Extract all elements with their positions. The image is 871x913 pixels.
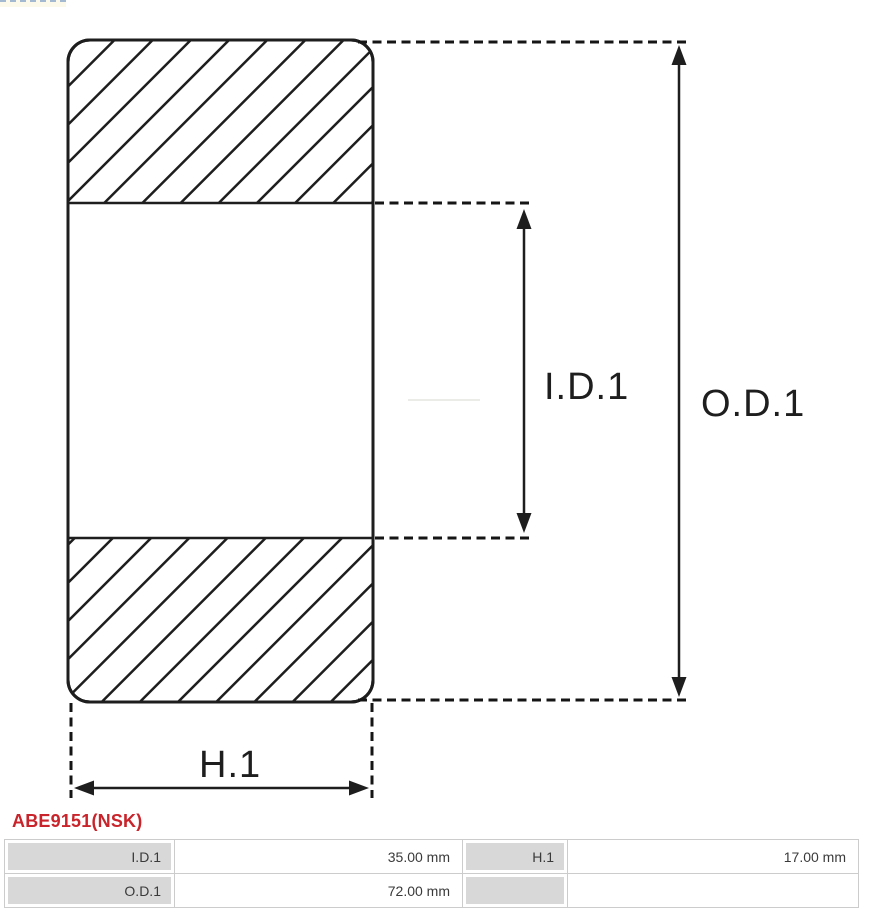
id1-dimension-arrow [517, 209, 532, 533]
table-row: O.D.1 72.00 mm [5, 874, 859, 908]
spec-label-h1: H.1 [466, 843, 564, 870]
spec-value-empty [568, 874, 859, 908]
spec-label-empty [466, 877, 564, 904]
spec-value-h1: 17.00 mm [568, 840, 859, 874]
bottom-ring-hatch [68, 539, 373, 702]
part-number-title: ABE9151(NSK) [12, 811, 142, 832]
id1-dimension-label: I.D.1 [544, 366, 629, 408]
top-ring-hatch [68, 40, 373, 203]
spec-label-cell-id1: I.D.1 [5, 840, 175, 874]
specs-table: I.D.1 35.00 mm H.1 17.00 mm O.D.1 72.00 … [4, 839, 859, 908]
bearing-cross-section-diagram: I.D.1 O.D.1 H.1 [0, 0, 871, 808]
spec-label-cell-h1: H.1 [463, 840, 568, 874]
od1-dimension-label: O.D.1 [701, 383, 805, 425]
od1-dimension-arrow [672, 45, 687, 697]
spec-label-id1: I.D.1 [8, 843, 171, 870]
spec-label-cell-od1: O.D.1 [5, 874, 175, 908]
spec-value-od1: 72.00 mm [175, 874, 463, 908]
spec-label-cell-empty [463, 874, 568, 908]
spec-label-od1: O.D.1 [8, 877, 171, 904]
table-row: I.D.1 35.00 mm H.1 17.00 mm [5, 840, 859, 874]
h1-dimension-label: H.1 [199, 744, 261, 786]
spec-value-id1: 35.00 mm [175, 840, 463, 874]
watermark-line [408, 399, 480, 401]
